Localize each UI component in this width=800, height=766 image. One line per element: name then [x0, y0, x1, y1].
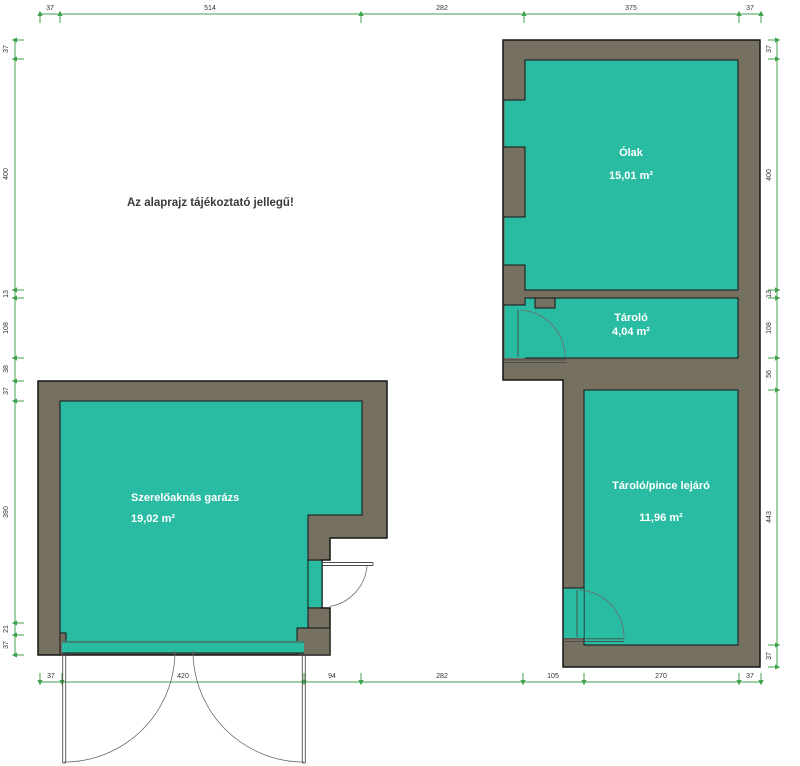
dim-tick	[12, 295, 24, 300]
dim-tick	[768, 664, 780, 669]
dim-tick	[12, 378, 24, 383]
room-tarolo-area: 4,04 m²	[612, 326, 650, 338]
dimension-chain-right: 37 400 13 108 56 443 37	[766, 37, 780, 669]
dim-tick	[736, 11, 741, 23]
dim-label: 37	[746, 673, 754, 680]
dim-tick	[12, 652, 24, 657]
dim-label: 13	[3, 290, 10, 298]
room-pince-area: 11,96 m²	[639, 512, 683, 524]
dim-label: 94	[328, 673, 336, 680]
dim-tick	[12, 287, 24, 292]
room-garazs-name: Szerelőaknás garázs	[131, 492, 239, 504]
dim-tick	[768, 642, 780, 647]
garage-building: Szerelőaknás garázs 19,02 m²	[38, 381, 387, 763]
garage-side-door-swing	[330, 566, 368, 607]
dim-tick	[768, 355, 780, 360]
pince-door-opening	[564, 588, 584, 638]
dim-tick	[37, 11, 42, 23]
room-pince-name: Tároló/pince lejáró	[612, 480, 710, 492]
dim-label: 400	[3, 168, 10, 180]
room-tarolo-name: Tároló	[614, 312, 648, 324]
dim-tick	[758, 11, 763, 23]
garage-side-door-opening	[309, 561, 322, 607]
dim-tick	[581, 673, 586, 685]
dim-label: 375	[625, 5, 637, 12]
dim-tick	[57, 11, 62, 23]
dimension-chain-left: 37 400 13 108 38 37 390 21 37	[3, 37, 24, 657]
dim-label: 37	[3, 45, 10, 53]
dim-tick	[12, 37, 24, 42]
dim-tick	[12, 620, 24, 625]
dim-label: 37	[3, 641, 10, 649]
right-building: Ólak 15,01 m² Tároló 4,04 m² Tároló/pinc…	[503, 40, 760, 667]
dim-tick	[12, 355, 24, 360]
dim-label: 105	[547, 673, 559, 680]
dim-tick	[758, 673, 763, 685]
dim-tick	[768, 387, 780, 392]
garage-door-swing-left	[64, 651, 175, 762]
dim-tick	[12, 632, 24, 637]
dim-label: 514	[204, 5, 216, 12]
tarolo-door-jamb	[535, 298, 555, 308]
dim-tick	[736, 673, 741, 685]
dim-tick	[768, 37, 780, 42]
dim-label: 21	[3, 625, 10, 633]
dimension-chain-top: 37 514 282 375 37	[37, 5, 763, 23]
dim-label: 56	[766, 370, 773, 378]
dim-label: 37	[47, 673, 55, 680]
dim-label: 420	[177, 673, 189, 680]
dim-tick	[37, 673, 42, 685]
dim-label: 38	[3, 365, 10, 373]
dim-label: 37	[766, 45, 773, 53]
tarolo-door-opening	[505, 305, 526, 358]
floor-plan-page: 37 514 282 375 37 37 420 94 282 105 270 …	[0, 0, 800, 766]
room-olak-area: 15,01 m²	[609, 170, 653, 182]
floor-plan-canvas: 37 514 282 375 37 37 420 94 282 105 270 …	[0, 0, 800, 766]
garage-door-opening	[62, 641, 304, 653]
dim-tick	[358, 673, 363, 685]
dim-label: 37	[46, 5, 54, 12]
dim-label: 270	[655, 673, 667, 680]
dim-label: 390	[3, 506, 10, 518]
dim-tick	[768, 56, 780, 61]
dim-label: 37	[746, 5, 754, 12]
dimension-chain-bottom: 37 420 94 282 105 270 37	[37, 673, 763, 685]
dim-label: 400	[766, 169, 773, 181]
olak-opening-2	[505, 218, 526, 265]
dim-tick	[520, 673, 525, 685]
dim-tick	[358, 11, 363, 23]
plan-note: Az alaprajz tájékoztató jellegű! Az alap…	[127, 197, 295, 210]
dim-tick	[521, 11, 526, 23]
room-garazs-area: 19,02 m²	[131, 513, 175, 525]
dim-label: 282	[436, 5, 448, 12]
dim-tick	[59, 673, 64, 685]
olak-opening-1	[505, 101, 526, 147]
dim-tick	[12, 398, 24, 403]
room-olak-name: Ólak	[619, 146, 644, 159]
dim-label: 282	[436, 673, 448, 680]
dim-label: 108	[3, 322, 10, 334]
plan-note-text: Az alaprajz tájékoztató jellegű!	[127, 197, 294, 209]
dim-label: 37	[766, 652, 773, 660]
garage-door-swing-right	[193, 651, 304, 762]
dim-label: 13	[766, 290, 773, 298]
dim-tick	[12, 56, 24, 61]
dim-label: 37	[3, 387, 10, 395]
dim-label: 443	[766, 511, 773, 523]
dim-label: 108	[766, 322, 773, 334]
